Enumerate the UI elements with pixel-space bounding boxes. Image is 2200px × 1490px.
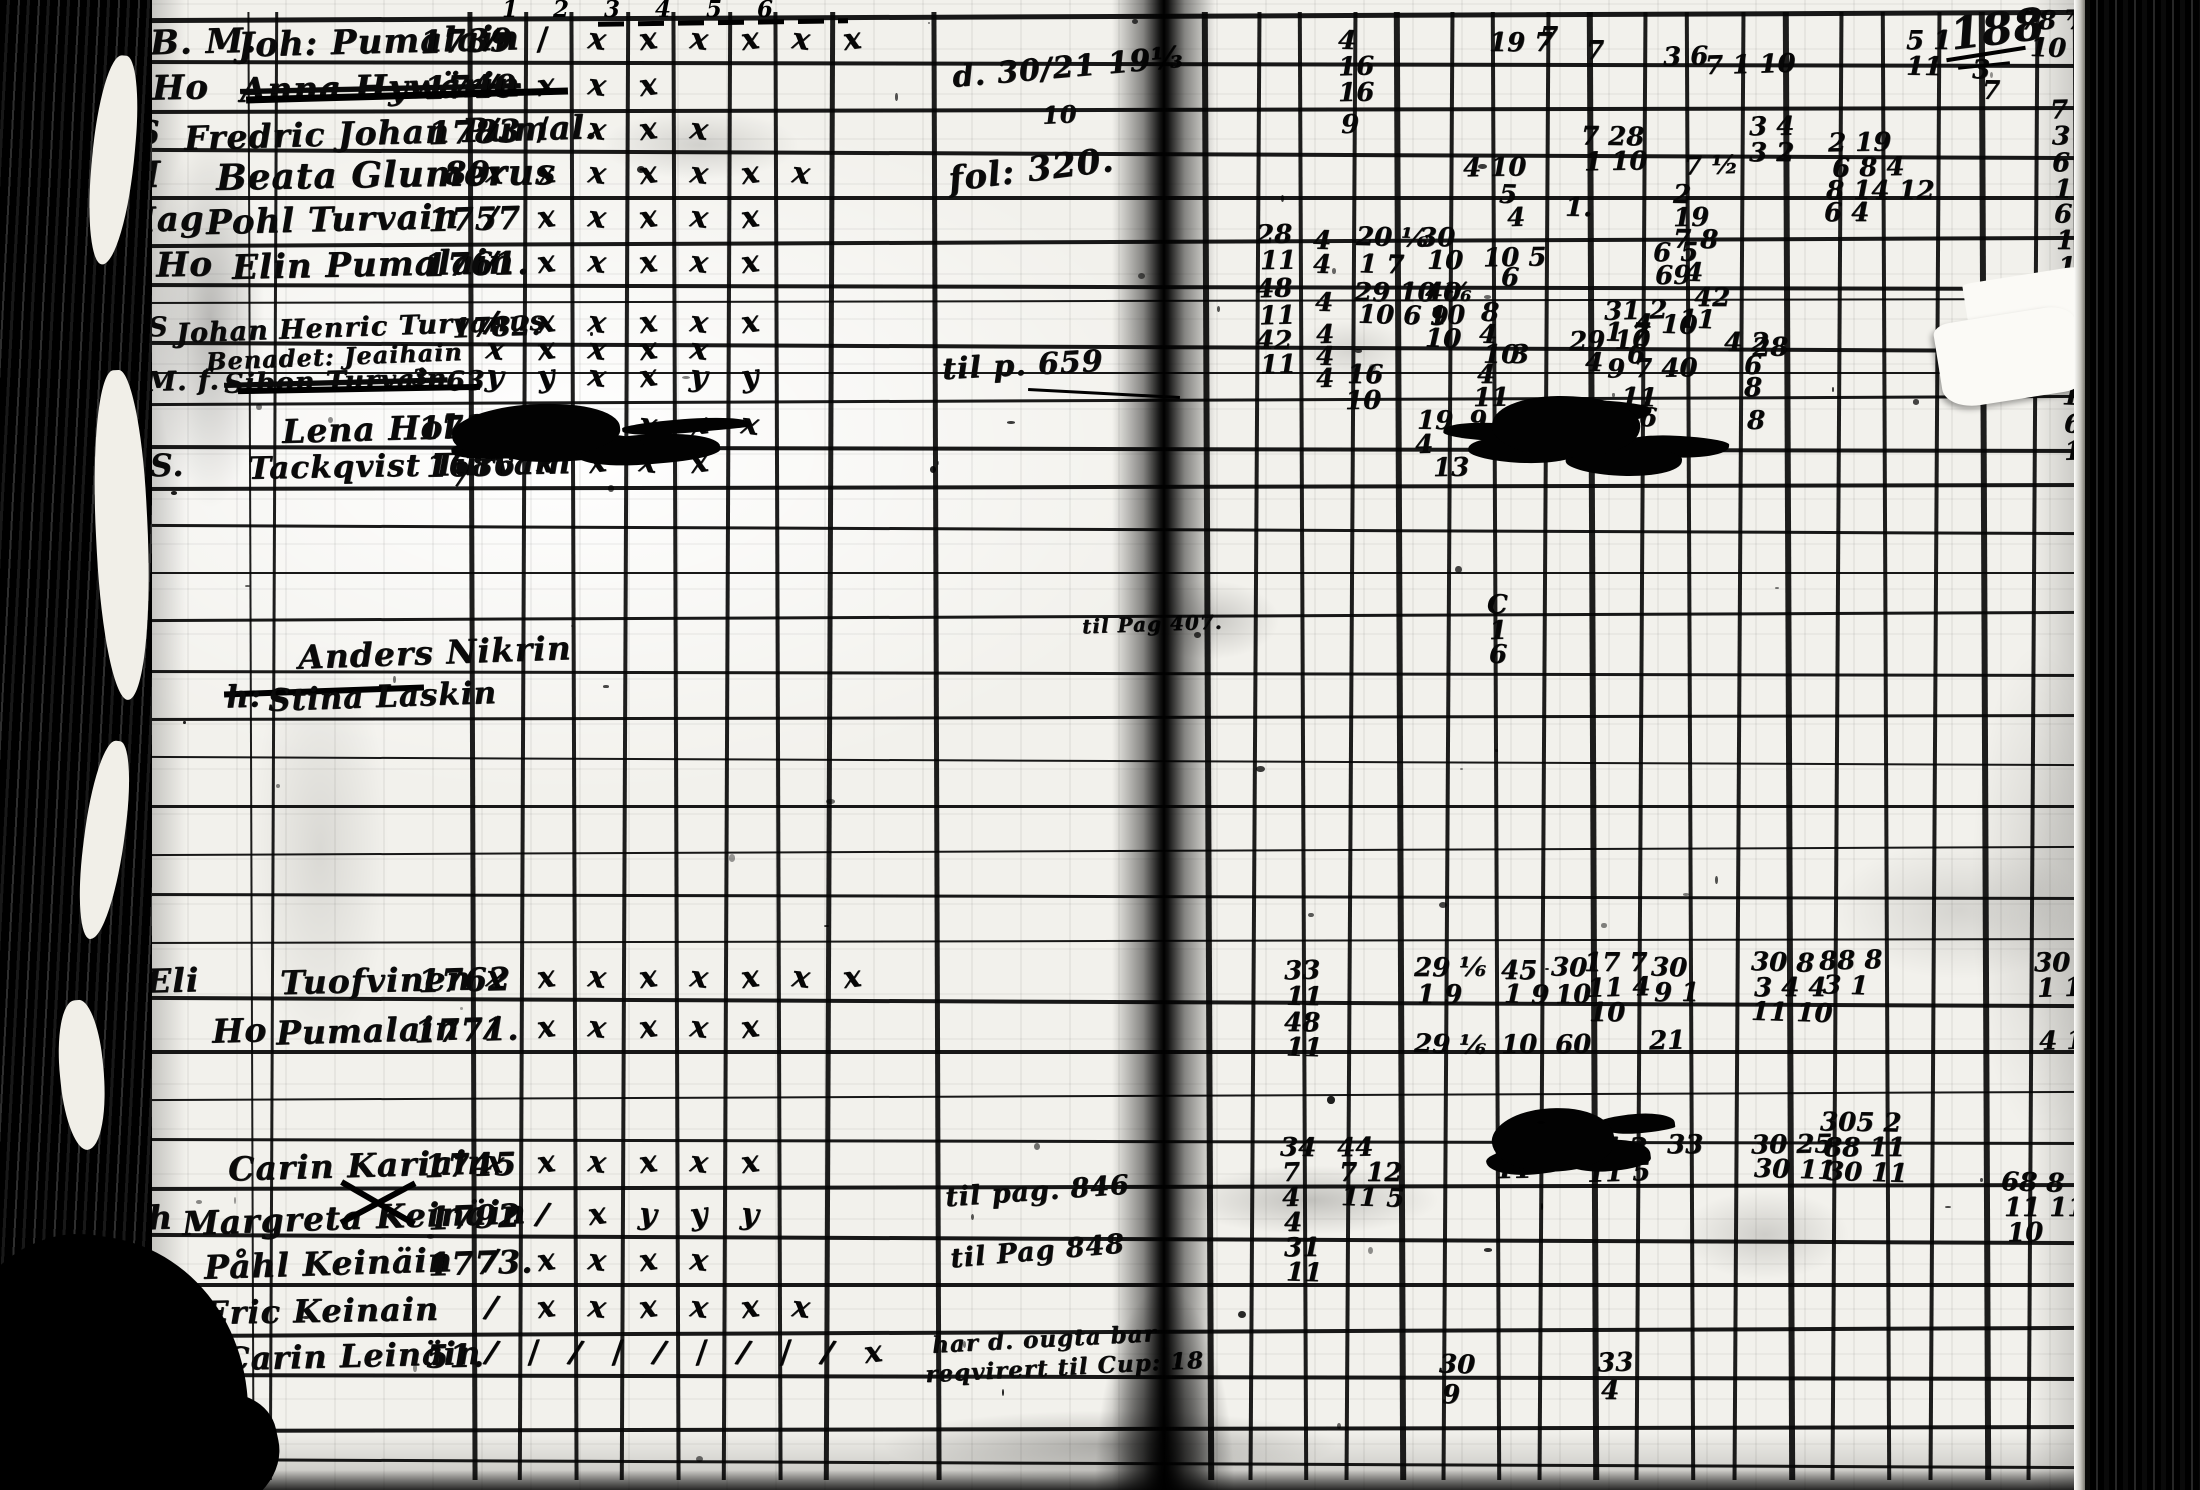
tally-mark: x bbox=[586, 358, 607, 395]
ink-speck bbox=[427, 1234, 434, 1238]
ledger-number: 10 bbox=[1589, 998, 1625, 1028]
entry-year: 1740 bbox=[424, 67, 518, 107]
ledger-number: 6 bbox=[1489, 640, 1508, 670]
tally-mark: x bbox=[586, 21, 607, 58]
person-name: Pohl Turvain bbox=[206, 197, 460, 243]
ink-speck bbox=[1002, 1389, 1004, 1397]
ink-speck bbox=[608, 485, 614, 491]
ledger-number: 1 10 bbox=[1584, 147, 1648, 178]
bottom-shadow bbox=[138, 1470, 2088, 1490]
ledger-number: 11 5 bbox=[1341, 1182, 1405, 1214]
ink-speck bbox=[171, 491, 177, 495]
ledger-number: 33 bbox=[1667, 1130, 1703, 1160]
row-prefix: M. f. bbox=[146, 365, 220, 398]
tally-mark: x bbox=[790, 1289, 811, 1326]
tally-mark: x bbox=[637, 444, 658, 481]
ink-speck bbox=[1478, 164, 1487, 169]
ledger-number: 1 7 bbox=[1359, 249, 1405, 280]
right-binding-edge bbox=[2085, 0, 2200, 1490]
ink-speck bbox=[682, 376, 690, 379]
tally-mark: x bbox=[586, 111, 607, 148]
ledger-number: 1 9 bbox=[1417, 980, 1462, 1010]
entry-year: 1773. bbox=[427, 1242, 533, 1283]
ink-speck bbox=[1138, 273, 1145, 279]
entry-year: 63 bbox=[446, 366, 486, 398]
column-header-digit: 5 bbox=[706, 0, 722, 23]
ink-speck bbox=[393, 676, 395, 683]
tally-mark: x bbox=[688, 199, 709, 236]
ledger-number: 11 bbox=[1286, 1258, 1323, 1289]
tally-mark: x bbox=[688, 21, 709, 58]
tally-mark: x bbox=[586, 199, 607, 236]
ledger-number: 4 bbox=[1315, 288, 1334, 318]
ledger-number: 7 ½ bbox=[1684, 150, 1739, 182]
tally-mark: x bbox=[637, 406, 658, 443]
ledger-number: 6 4 bbox=[1824, 198, 1869, 228]
ledger-number: 11 bbox=[1679, 305, 1716, 336]
ink-speck bbox=[413, 1364, 416, 1372]
ledger-number: 11 10 bbox=[1751, 997, 1833, 1029]
ledger-number: 1 9 bbox=[1504, 979, 1550, 1010]
tally-mark: x bbox=[688, 1242, 709, 1279]
tally-mark: x bbox=[688, 244, 709, 281]
ruled-line bbox=[138, 1283, 2088, 1287]
margin-annotation: 7 bbox=[452, 466, 468, 492]
ink-speck bbox=[1484, 1248, 1492, 1251]
ledger-number: 13 bbox=[1433, 453, 1470, 484]
ink-speck bbox=[590, 332, 593, 336]
ink-speck bbox=[1601, 923, 1606, 928]
paper-tear bbox=[52, 998, 111, 1152]
ledger-number: 7 1 10 bbox=[1705, 49, 1796, 82]
ledger-number: 3 2 bbox=[1749, 138, 1794, 168]
entry-year: 1771. bbox=[413, 1010, 519, 1051]
column-header-digit: 6 bbox=[757, 0, 773, 23]
ledger-number: 29 ⅙ bbox=[1414, 953, 1486, 983]
ledger-number: 4 bbox=[1601, 1376, 1619, 1406]
ledger-number: 16 bbox=[1338, 78, 1375, 109]
entry-year: 51. bbox=[426, 1336, 486, 1375]
tally-mark: x bbox=[484, 155, 505, 192]
tally-mark: x bbox=[484, 1144, 505, 1181]
ledger-number: 1. bbox=[1565, 193, 1593, 223]
ledger-number: 7 bbox=[1586, 36, 1604, 66]
tally-mark: x bbox=[586, 67, 607, 104]
tally-mark: x bbox=[688, 111, 709, 148]
ledger-number: 9 bbox=[1469, 406, 1488, 436]
ledger-number: 9 1 bbox=[1654, 978, 1699, 1008]
row-prefix: Eli bbox=[146, 960, 200, 1000]
entry-year: 1783 bbox=[427, 112, 521, 153]
paper-tear bbox=[72, 738, 136, 941]
tally-mark: x bbox=[688, 959, 709, 996]
ruled-line bbox=[138, 805, 2088, 808]
ledger-number: 10 bbox=[1425, 324, 1462, 355]
tally-mark: x bbox=[688, 155, 709, 192]
tally-mark: y bbox=[484, 358, 505, 395]
tally-mark: x bbox=[586, 1144, 607, 1181]
margin-annotation: 10 bbox=[1041, 99, 1078, 130]
tally-mark: x bbox=[739, 406, 760, 443]
ledger-number: 4 bbox=[1313, 250, 1332, 280]
ledger-number: 9 bbox=[1442, 1380, 1460, 1410]
ink-speck bbox=[1484, 295, 1491, 299]
tally-mark: x bbox=[586, 244, 607, 281]
person-name: Påhl Keinäin bbox=[203, 1240, 453, 1287]
ink-speck bbox=[930, 466, 936, 473]
row-prefix: Ho bbox=[156, 244, 214, 285]
tally-mark: x bbox=[586, 1242, 607, 1279]
ledger-number: 60 bbox=[1555, 1030, 1592, 1061]
ink-speck bbox=[1455, 566, 1461, 573]
tally-mark: x bbox=[688, 1289, 709, 1326]
ledger-number: 4 bbox=[1415, 430, 1434, 460]
ink-speck bbox=[696, 1456, 703, 1462]
row-prefix: Ho bbox=[211, 1010, 267, 1051]
tally-mark: x bbox=[790, 155, 811, 192]
ink-speck bbox=[826, 799, 835, 804]
tally-mark: x bbox=[586, 1009, 607, 1046]
ledger-number: 3 1 bbox=[1823, 970, 1869, 1001]
ruled-line bbox=[138, 572, 2088, 574]
ink-speck bbox=[1439, 902, 1447, 908]
ledger-number: 4 bbox=[1316, 364, 1335, 394]
ledger-number: 10 bbox=[1427, 246, 1464, 277]
ledger-number: 11 bbox=[1286, 1033, 1323, 1064]
ledger-number: 29 ⅙ bbox=[1414, 1029, 1487, 1061]
tally-mark: x bbox=[790, 21, 811, 58]
ledger-number: 3 bbox=[1511, 340, 1530, 370]
ink-speck bbox=[729, 854, 736, 862]
row-prefix: Ho bbox=[152, 67, 210, 108]
ruled-line bbox=[138, 1050, 2088, 1054]
ink-speck bbox=[1612, 393, 1614, 396]
tally-mark: x bbox=[586, 155, 607, 192]
ink-speck bbox=[1034, 1143, 1041, 1150]
ledger-number: 4 10 bbox=[1463, 153, 1527, 184]
tally-mark: x bbox=[688, 1144, 709, 1181]
entry-year: 1739 bbox=[420, 21, 514, 61]
entry-year: 1761. bbox=[424, 244, 530, 284]
ink-speck bbox=[1327, 1096, 1334, 1103]
ledger-number: 9 7 40 bbox=[1607, 353, 1698, 384]
row-prefix: S. bbox=[150, 448, 185, 485]
ink-speck bbox=[183, 721, 185, 724]
ink-speck bbox=[1175, 1363, 1179, 1367]
ledger-number: 10 bbox=[1501, 1030, 1538, 1061]
ink-speck bbox=[245, 585, 250, 587]
entry-year: 1792 bbox=[427, 1196, 521, 1237]
ink-speck bbox=[210, 366, 213, 371]
tally-mark: y bbox=[637, 1196, 658, 1233]
ink-speck bbox=[1945, 1206, 1951, 1208]
tally-mark: x bbox=[688, 1009, 709, 1046]
margin-annotation: til Pag 407. bbox=[1082, 610, 1223, 639]
ledger-number: 11 bbox=[1906, 52, 1943, 83]
ink-speck bbox=[276, 784, 280, 788]
entry-year: 1757 bbox=[428, 199, 522, 239]
column-header-digit: 3 bbox=[604, 0, 620, 23]
ink-speck bbox=[1194, 632, 1201, 638]
ledger-number: 21 bbox=[1649, 1026, 1686, 1057]
ink-speck bbox=[1495, 749, 1497, 752]
tally-mark: y bbox=[688, 358, 709, 395]
ledger-number: 8 bbox=[1744, 373, 1762, 403]
row-prefix: h: bbox=[225, 678, 262, 715]
tally-mark: x bbox=[790, 959, 811, 996]
ink-speck bbox=[1281, 195, 1284, 202]
ledger-number: 10 bbox=[1345, 386, 1382, 417]
ink-speck bbox=[1355, 349, 1362, 353]
scanned-ledger-spread: 123456 B. M. Joh: Pumalain 1739 //xxxxxx… bbox=[0, 0, 2200, 1490]
tally-mark: x bbox=[586, 1289, 607, 1326]
ledger-number: 3 6 bbox=[1663, 41, 1709, 72]
ledger-number: 4 bbox=[1507, 203, 1526, 233]
ledger-number: 6 bbox=[1501, 263, 1520, 293]
ledger-number: 4 bbox=[1585, 348, 1604, 378]
ink-speck bbox=[1775, 587, 1779, 589]
ledger-number: 11 bbox=[1260, 350, 1297, 381]
ledger-number: 10 bbox=[2007, 1218, 2044, 1249]
ledger-number: 7 bbox=[1982, 76, 2001, 106]
ink-speck bbox=[1541, 1203, 1543, 1210]
column-header-digit: 2 bbox=[553, 0, 569, 23]
ink-speck bbox=[1913, 399, 1920, 404]
ledger-number: 11 bbox=[1260, 246, 1297, 277]
scan-smudge bbox=[1680, 1190, 1850, 1280]
ledger-number: 7 bbox=[1540, 22, 1558, 52]
ledger-number: 30 11 bbox=[1826, 1157, 1908, 1189]
ink-speck bbox=[895, 93, 898, 100]
ink-speck bbox=[1132, 19, 1138, 24]
paper-tear bbox=[83, 54, 143, 267]
ink-speck bbox=[603, 685, 608, 688]
ledger-number: 8 bbox=[1747, 406, 1766, 436]
person-name: Eric Keinain bbox=[204, 1290, 440, 1332]
paper-tear bbox=[87, 369, 156, 701]
ledger-number: 33 bbox=[1597, 1348, 1634, 1379]
tally-mark: x bbox=[484, 959, 505, 996]
ledger-number: 30 bbox=[1439, 1350, 1476, 1381]
ledger-number: 9 bbox=[1341, 110, 1360, 140]
ink-speck bbox=[1007, 421, 1015, 423]
ink-speck bbox=[1332, 268, 1336, 273]
tally-mark: y bbox=[739, 1196, 760, 1233]
tally-mark: x bbox=[586, 959, 607, 996]
column-header-digit: 4 bbox=[655, 0, 671, 23]
